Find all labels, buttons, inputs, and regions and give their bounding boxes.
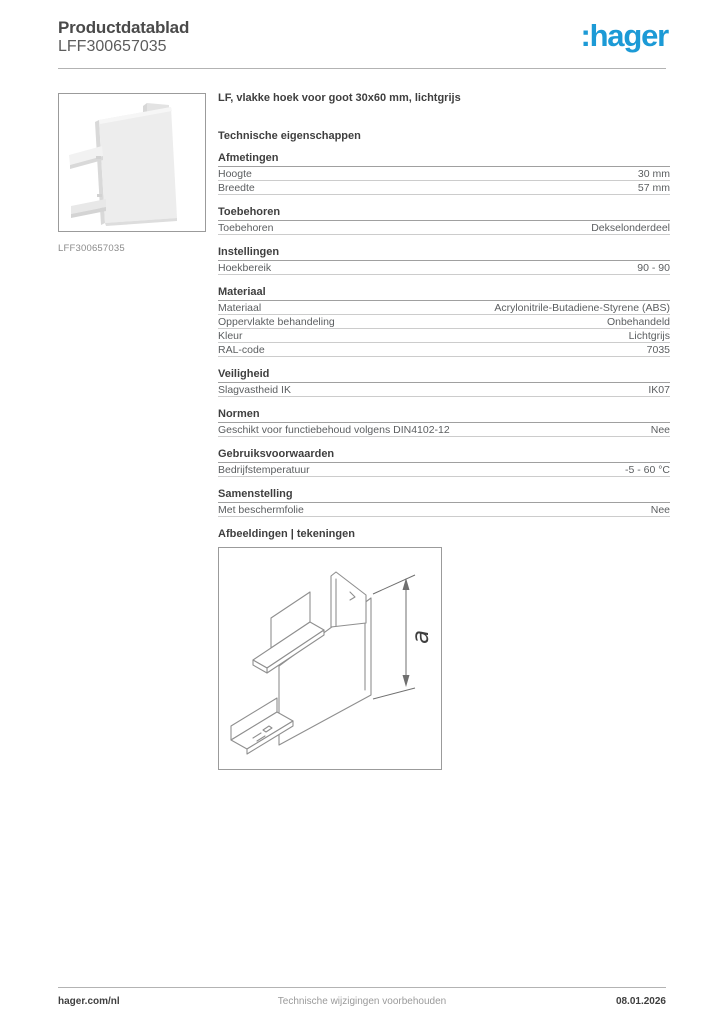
spec-value: 57 mm [638,182,670,194]
spec-value: 90 - 90 [637,262,670,274]
spec-label: Kleur [218,330,243,342]
spec-label: Geschikt voor functiebehoud volgens DIN4… [218,424,450,436]
spec-label: Hoekbereik [218,262,271,274]
spec-value: Acrylonitrile-Butadiene-Styrene (ABS) [494,302,670,314]
spec-section-heading: Afmetingen [218,152,670,167]
spec-label: RAL-code [218,344,265,356]
spec-row: Breedte57 mm [218,181,670,195]
dimension-label-a: a [408,630,434,644]
spec-value: 7035 [647,344,670,356]
spec-label: Bedrijfstemperatuur [218,464,310,476]
spec-section-heading: Samenstelling [218,488,670,503]
spec-row: Geschikt voor functiebehoud volgens DIN4… [218,423,670,437]
spec-section: GebruiksvoorwaardenBedrijfstemperatuur-5… [218,448,670,477]
product-photo-image [59,94,205,231]
spec-section-heading: Toebehoren [218,206,670,221]
hager-logo: :hager [580,18,668,54]
page-title: Productdatablad [58,18,189,38]
spec-value: Onbehandeld [607,316,670,328]
spec-section: NormenGeschikt voor functiebehoud volgen… [218,408,670,437]
spec-section: InstellingenHoekbereik90 - 90 [218,246,670,275]
spec-row: ToebehorenDekselonderdeel [218,221,670,235]
product-photo [58,93,206,232]
spec-value: -5 - 60 °C [625,464,670,476]
spec-label: Toebehoren [218,222,273,234]
spec-section: SamenstellingMet beschermfolieNee [218,488,670,517]
footer-divider [58,987,666,988]
spec-section-heading: Instellingen [218,246,670,261]
spec-row: MateriaalAcrylonitrile-Butadiene-Styrene… [218,301,670,315]
spec-row: RAL-code7035 [218,343,670,357]
drawings-heading: Afbeeldingen | tekeningen [218,528,670,541]
spec-section: ToebehorenToebehorenDekselonderdeel [218,206,670,235]
datasheet-page: Productdatablad LFF300657035 :hager LFF3… [0,0,724,1024]
technical-drawing: a [218,547,442,770]
technical-properties-heading: Technische eigenschappen [218,130,670,143]
spec-section: MateriaalMateriaalAcrylonitrile-Butadien… [218,286,670,357]
main-content: LF, vlakke hoek voor goot 30x60 mm, lich… [218,92,670,770]
spec-label: Met beschermfolie [218,504,304,516]
product-photo-caption: LFF300657035 [58,243,125,254]
spec-value: Lichtgrijs [629,330,670,342]
product-reference: LFF300657035 [58,38,167,56]
spec-value: Dekselonderdeel [591,222,670,234]
spec-section: AfmetingenHoogte30 mmBreedte57 mm [218,152,670,195]
spec-row: Slagvastheid IKIK07 [218,383,670,397]
spec-table: AfmetingenHoogte30 mmBreedte57 mmToebeho… [218,152,670,517]
spec-value: Nee [651,504,670,516]
spec-row: Met beschermfolieNee [218,503,670,517]
spec-section: VeiligheidSlagvastheid IKIK07 [218,368,670,397]
spec-section-heading: Gebruiksvoorwaarden [218,448,670,463]
spec-row: Hoekbereik90 - 90 [218,261,670,275]
spec-value: 30 mm [638,168,670,180]
product-title: LF, vlakke hoek voor goot 30x60 mm, lich… [218,92,670,105]
spec-row: KleurLichtgrijs [218,329,670,343]
footer-date: 08.01.2026 [616,996,666,1007]
technical-drawing-image: a [219,548,441,769]
spec-label: Oppervlakte behandeling [218,316,335,328]
spec-label: Slagvastheid IK [218,384,291,396]
spec-value: Nee [651,424,670,436]
spec-section-heading: Normen [218,408,670,423]
spec-label: Materiaal [218,302,261,314]
spec-section-heading: Veiligheid [218,368,670,383]
spec-row: Bedrijfstemperatuur-5 - 60 °C [218,463,670,477]
spec-row: Hoogte30 mm [218,167,670,181]
spec-section-heading: Materiaal [218,286,670,301]
spec-label: Hoogte [218,168,252,180]
spec-value: IK07 [648,384,670,396]
spec-row: Oppervlakte behandelingOnbehandeld [218,315,670,329]
header-divider [58,68,666,69]
spec-label: Breedte [218,182,255,194]
